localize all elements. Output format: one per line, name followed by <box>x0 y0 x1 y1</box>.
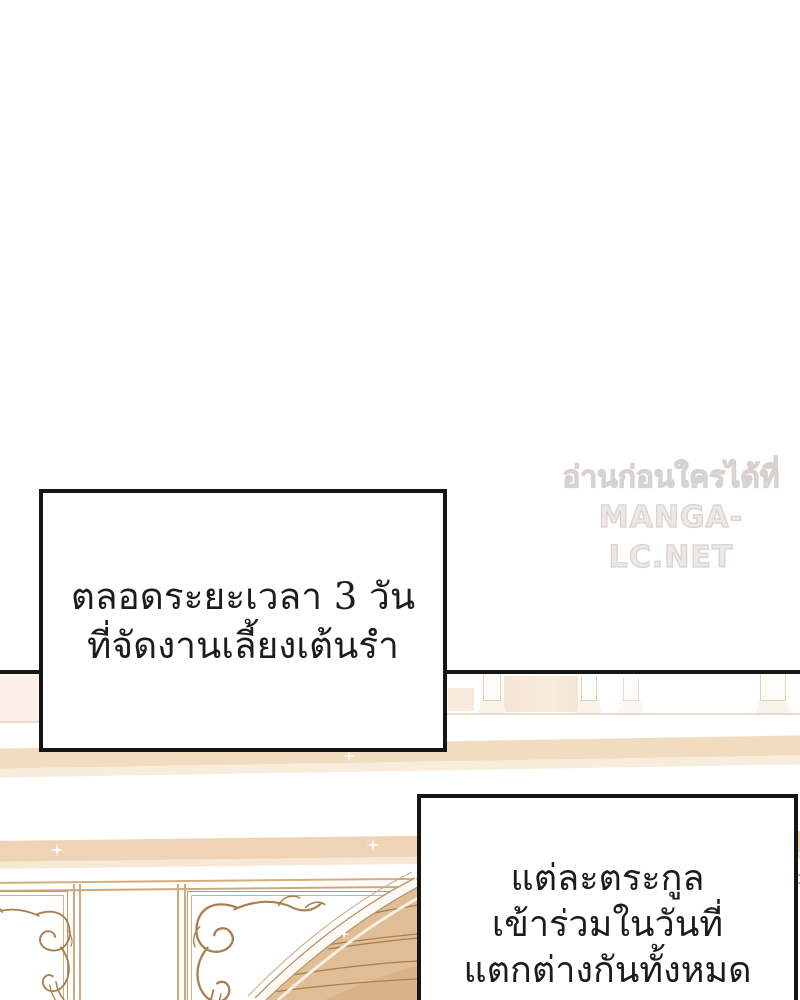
narration-box-2: แต่ละตระกูล เข้าร่วมในวันที่ แตกต่างกันท… <box>417 794 798 1000</box>
site-watermark: อ่านก่อนใครได้ที่ MANGA-LC.NET <box>545 458 797 578</box>
pilaster-line <box>79 884 81 1000</box>
acanthus-scroll-ornament-left <box>0 892 78 1000</box>
hall-column <box>618 678 644 714</box>
hall-column <box>576 676 602 714</box>
narration-box-2-line-2: เข้าร่วมในวันที่ <box>421 902 794 948</box>
manga-page: อ่านก่อนใครได้ที่ MANGA-LC.NET <box>0 0 800 1000</box>
watermark-thai-line: อ่านก่อนใครได้ที่ <box>545 458 797 498</box>
hall-sideboard-large <box>504 676 578 712</box>
hall-floor-line <box>0 721 40 723</box>
narration-box-1: ตลอดระยะเวลา 3 วัน ที่จัดงานเลี้ยงเต้นรำ <box>39 489 447 752</box>
hall-wall-left <box>0 674 40 722</box>
hall-column <box>478 674 506 714</box>
wooden-archway <box>230 858 418 1000</box>
hall-column <box>755 674 791 714</box>
hall-sideboard-small <box>448 688 474 711</box>
hall-floor-line <box>447 713 800 715</box>
narration-box-2-line-1: แต่ละตระกูล <box>421 856 794 902</box>
pilaster-line <box>177 884 179 1000</box>
narration-box-2-line-3: แตกต่างกันทั้งหมด <box>421 948 794 994</box>
watermark-site-name: MANGA-LC.NET <box>545 498 797 578</box>
narration-box-1-line-1: ตลอดระยะเวลา 3 วัน <box>43 572 443 621</box>
narration-box-1-line-2: ที่จัดงานเลี้ยงเต้นรำ <box>43 621 443 670</box>
